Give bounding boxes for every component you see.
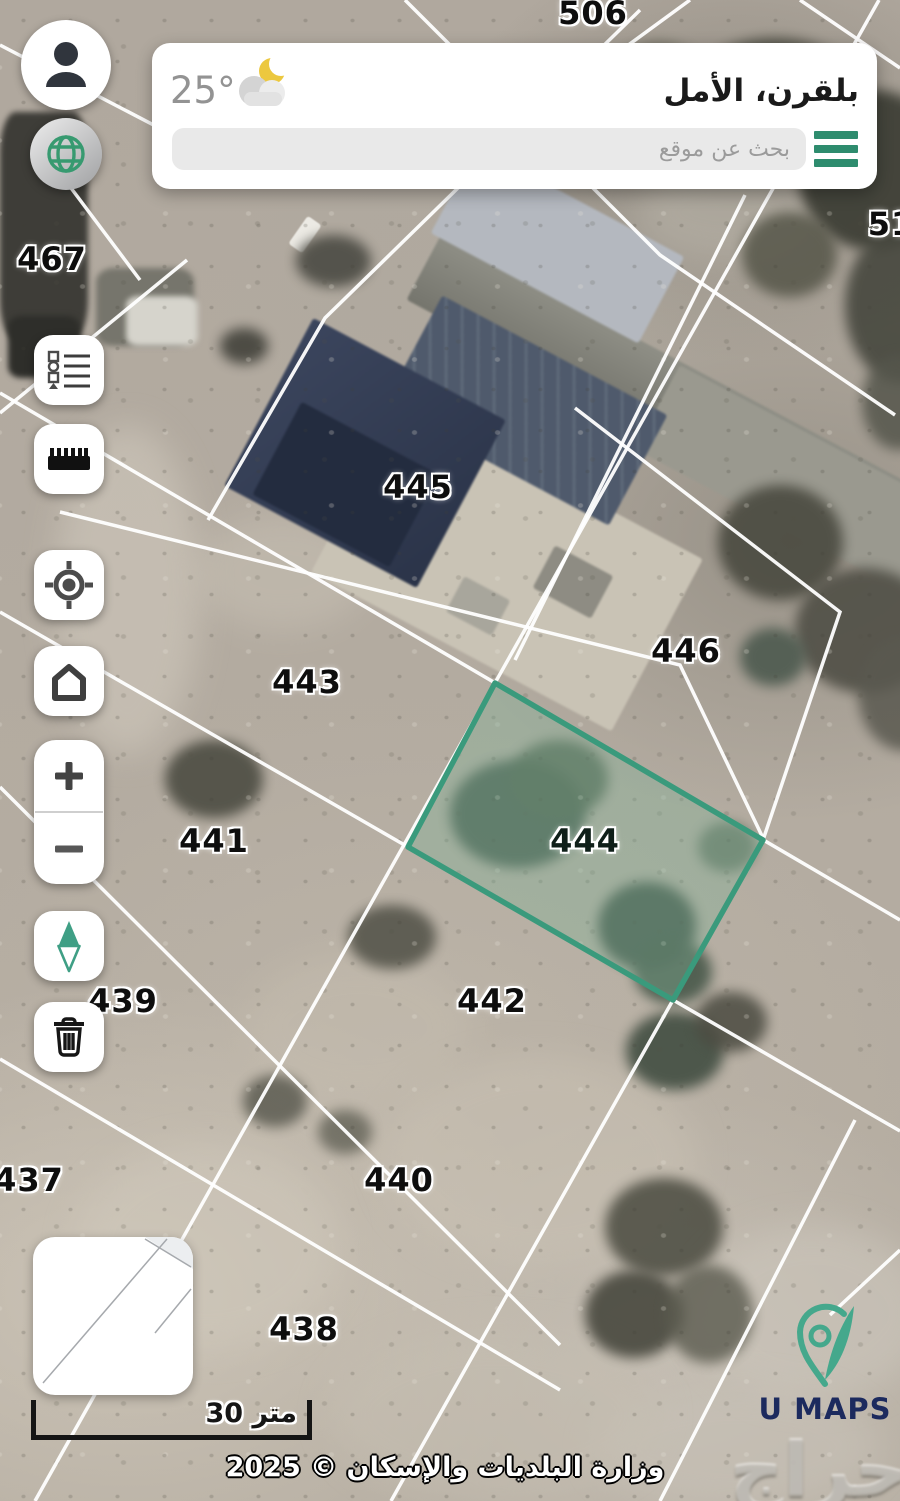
trash-icon [50,1016,88,1058]
parcel-label-444: 444 [550,822,620,860]
temperature: 25° [170,69,236,112]
parcel-label-446: 446 [651,632,721,670]
moon-cloud-icon [232,55,294,115]
crosshair-icon [43,559,95,611]
ruler-icon [46,445,92,473]
legend-button[interactable] [34,335,104,405]
location-title: بلقرن، الأمل [664,73,860,109]
parcel-label-51: 51 [868,205,900,243]
locate-button[interactable] [34,550,104,620]
minimap-boundary-line [43,1239,167,1383]
globe-button[interactable] [30,118,102,190]
parcel-label-445: 445 [383,468,453,506]
compass-needle-icon [55,919,83,973]
zoom-in-button[interactable] [34,740,104,811]
parcel-label-442: 442 [457,982,527,1020]
menu-button[interactable] [814,131,858,168]
globe-icon [44,132,88,176]
plus-icon [53,760,85,792]
minimap[interactable] [33,1237,193,1395]
map-canvas[interactable]: 50651467445446443441444442439437440438 2… [0,0,900,1501]
umaps-logo: U MAPS [756,1296,894,1426]
watermark: حراج [730,1428,900,1501]
parcel-label-440: 440 [364,1161,434,1199]
measure-button[interactable] [34,424,104,494]
delete-button[interactable] [34,1002,104,1072]
legend-list-icon [46,350,92,390]
scale-bar: 30 متر [31,1400,312,1440]
parcel-label-437: 437 [0,1161,64,1199]
parcel-label-467: 467 [17,240,87,278]
compass-button[interactable] [34,911,104,981]
home-icon [47,660,91,702]
parcel-label-441: 441 [179,822,249,860]
hamburger-icon [814,131,858,139]
parcel-label-443: 443 [272,663,342,701]
minus-icon [53,844,85,854]
scale-label: 30 متر [205,1398,297,1429]
minimap-boundary-line [155,1289,191,1333]
search-input[interactable] [172,128,806,170]
user-icon [40,37,92,93]
parcel-boundary-line [515,195,745,660]
umaps-pin-icon [790,1296,860,1388]
zoom-out-button[interactable] [34,813,104,884]
location-card: 25° بلقرن، الأمل [152,43,877,189]
profile-button[interactable] [21,20,111,110]
minimap-content [33,1237,193,1395]
zoom-control [34,740,104,884]
parcel-label-438: 438 [269,1310,339,1348]
home-button[interactable] [34,646,104,716]
parcel-label-506: 506 [558,0,628,32]
umaps-logo-text: U MAPS [756,1392,894,1426]
map-attribution: وزارة البلديات والإسكان © 2025 [225,1452,665,1483]
